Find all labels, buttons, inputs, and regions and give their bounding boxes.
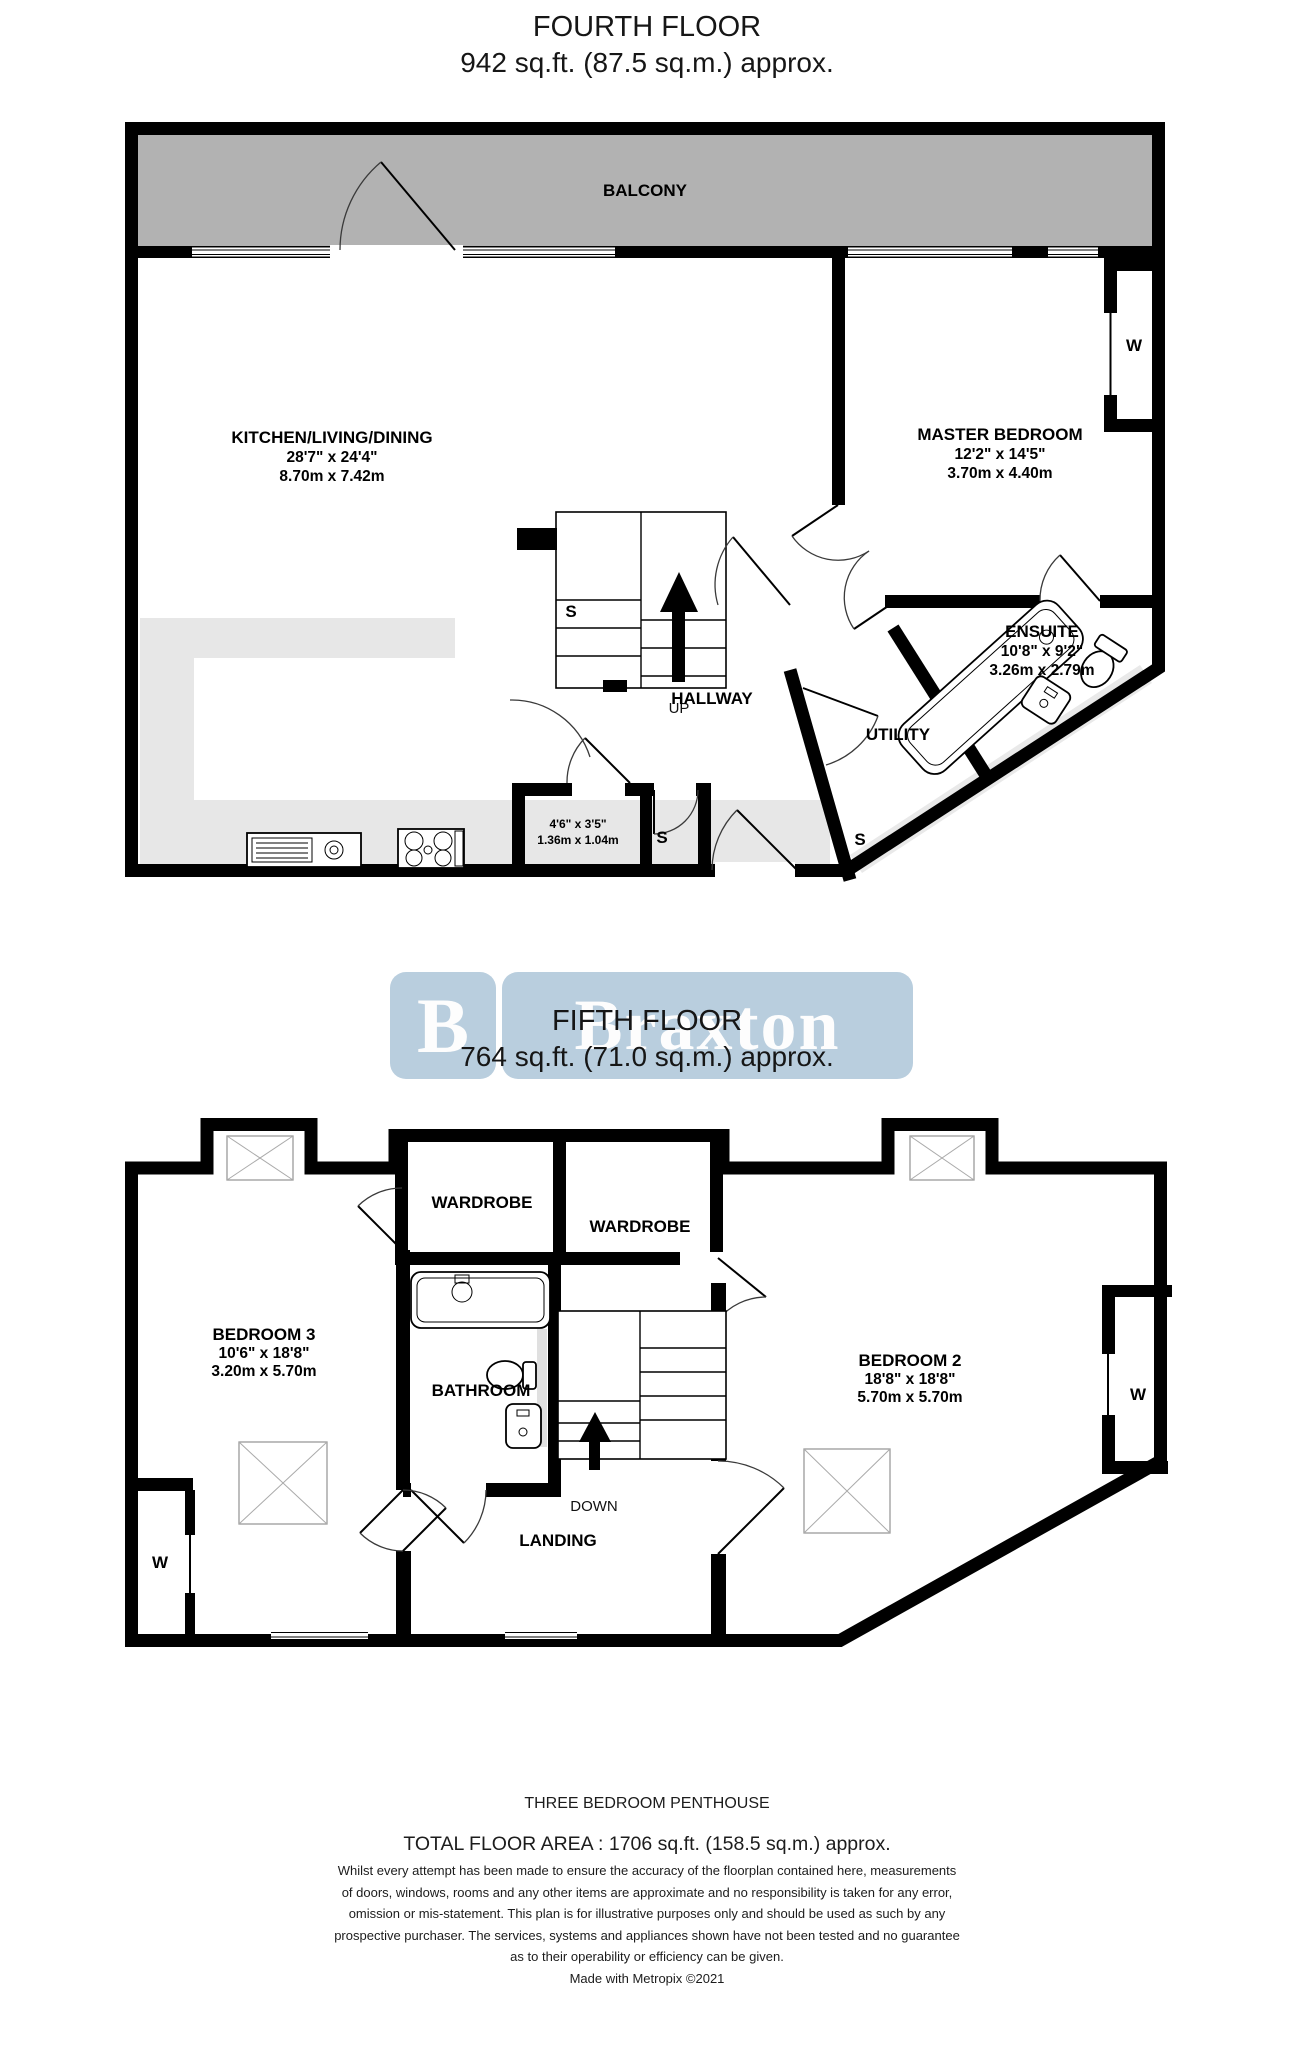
- store-dim-imperial: 4'6" x 3'5": [549, 817, 606, 831]
- ensuite-label-group: ENSUITE 10'8" x 9'2" 3.26m x 2.79m: [989, 622, 1094, 679]
- window: [1048, 248, 1098, 257]
- window: [463, 248, 615, 257]
- skylight-icon: [227, 1136, 293, 1180]
- bedroom2-label-group: BEDROOM 2 18'8" x 18'8" 5.70m x 5.70m: [857, 1351, 962, 1406]
- room-label: BEDROOM 3: [213, 1325, 316, 1344]
- wardrobe-label: W: [152, 1553, 169, 1572]
- bathroom-sink-icon: [506, 1404, 541, 1448]
- down-label: DOWN: [570, 1498, 618, 1515]
- room-dim-imperial: 12'2" x 14'5": [954, 446, 1045, 463]
- bathroom-bottom-wall: [486, 1483, 561, 1497]
- room-dim-metric: 8.70m x 7.42m: [279, 468, 384, 485]
- bathtub-icon: [411, 1272, 550, 1328]
- landing-bedroom2-wall: [711, 1554, 726, 1644]
- room-dim-metric: 3.70m x 4.40m: [947, 465, 1052, 482]
- wardrobe-label: W: [1126, 336, 1143, 355]
- wardrobe-label: WARDROBE: [431, 1193, 532, 1212]
- room-dim-imperial: 10'6" x 18'8": [218, 1345, 309, 1362]
- kitchen-door-arc: [510, 700, 590, 757]
- storage-label: S: [565, 602, 576, 621]
- fourth-floor-plan: BALCONY KITCHEN/LIVING/DINING 28'7" x 24…: [132, 122, 1166, 880]
- bedroom3-landing-wall: [396, 1551, 411, 1641]
- floorplan-page: FOURTH FLOOR 942 sq.ft. (87.5 sq.m.) app…: [0, 0, 1294, 2048]
- room-dim-metric: 3.20m x 5.70m: [211, 1363, 316, 1380]
- master-bedroom-double-door: [792, 505, 900, 629]
- master-label-group: MASTER BEDROOM 12'2" x 14'5" 3.70m x 4.4…: [917, 425, 1082, 482]
- store-door: [567, 738, 630, 783]
- wall-stub: [517, 528, 557, 550]
- room-dim-metric: 3.26m x 2.79m: [989, 662, 1094, 679]
- ensuite-top-wall: [885, 595, 1040, 608]
- room-label: BEDROOM 2: [859, 1351, 962, 1370]
- wardrobe-label: W: [1130, 1385, 1147, 1404]
- stairs-down: [558, 1311, 726, 1470]
- skylight-icon: [910, 1136, 974, 1180]
- kitchen-sink-icon: [247, 833, 361, 867]
- storage-label: S: [854, 830, 865, 849]
- floorplan-drawing: BALCONY KITCHEN/LIVING/DINING 28'7" x 24…: [0, 0, 1294, 2048]
- wall-stub: [603, 680, 627, 692]
- storage-label: S: [656, 828, 667, 847]
- room-dim-imperial: 28'7" x 24'4": [286, 449, 377, 466]
- hob-icon: [398, 829, 464, 868]
- ensuite-top-wall: [1100, 595, 1158, 608]
- room-dim-metric: 5.70m x 5.70m: [857, 1389, 962, 1406]
- hallway-label: HALLWAY: [671, 689, 753, 708]
- living-master-wall: [832, 258, 845, 505]
- balcony-label: BALCONY: [603, 181, 688, 200]
- store-dim-metric: 1.36m x 1.04m: [537, 833, 618, 847]
- room-label: KITCHEN/LIVING/DINING: [231, 428, 432, 447]
- wardrobe-label: WARDROBE: [589, 1217, 690, 1236]
- kitchen-label-group: KITCHEN/LIVING/DINING 28'7" x 24'4" 8.70…: [231, 428, 432, 485]
- window: [271, 1630, 368, 1639]
- roof-window-icon: [239, 1442, 327, 1524]
- fifth-floor-plan: WARDROBE WARDROBE BEDROOM 3 10'6" x 18'8…: [132, 1125, 1173, 1645]
- utility-label: UTILITY: [866, 725, 931, 744]
- room-dim-imperial: 10'8" x 9'2": [1001, 643, 1083, 660]
- window: [192, 248, 330, 257]
- room-dim-imperial: 18'8" x 18'8": [864, 1371, 955, 1388]
- room-label: MASTER BEDROOM: [917, 425, 1082, 444]
- landing-label: LANDING: [519, 1531, 596, 1550]
- roof-window-icon: [804, 1449, 890, 1533]
- stairs-up: [517, 512, 726, 692]
- bathroom-label: BATHROOM: [432, 1381, 531, 1400]
- window: [505, 1630, 577, 1639]
- bedroom3-label-group: BEDROOM 3 10'6" x 18'8" 3.20m x 5.70m: [211, 1325, 316, 1380]
- room-label: ENSUITE: [1005, 622, 1079, 641]
- bedroom3-bathroom-wall: [396, 1250, 410, 1490]
- balcony-door-opening: [330, 245, 463, 259]
- window: [848, 248, 1012, 257]
